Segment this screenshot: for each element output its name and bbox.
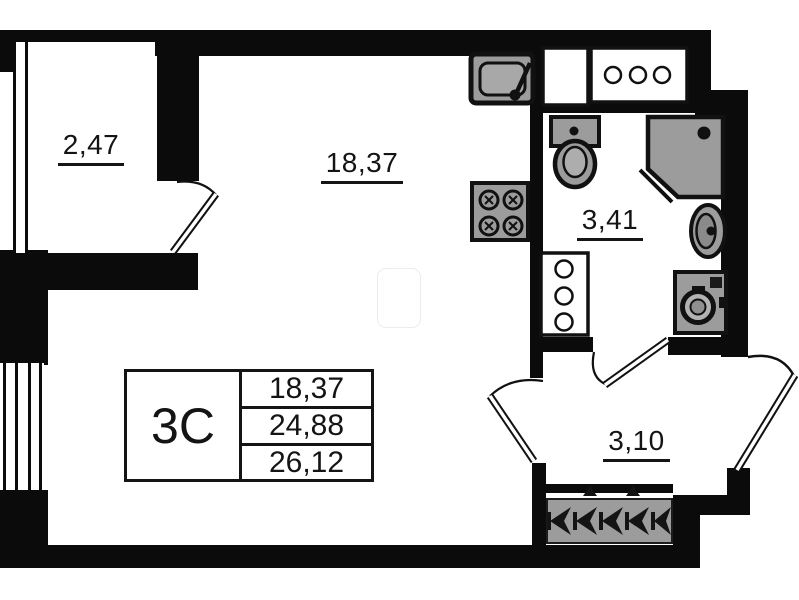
- wall-room-wc: [530, 48, 543, 378]
- window-pane-line: [15, 363, 18, 490]
- loggia-area-value: 2,47: [58, 129, 125, 166]
- living-area-label: 18,37: [305, 147, 419, 184]
- wall-wc-bottom-left: [532, 337, 593, 352]
- living-area-value: 18,37: [321, 147, 404, 184]
- entrance-door: [737, 356, 795, 470]
- toilet-icon: [551, 117, 599, 187]
- glazing-line: [25, 42, 28, 253]
- bathroom-area-value: 3,41: [577, 204, 644, 241]
- bathroom-door: [593, 340, 668, 385]
- balcony-glazing: [13, 42, 28, 253]
- window-pane-line: [39, 363, 42, 490]
- wall-balcony-bottom: [0, 253, 198, 290]
- cooktop-icon: [472, 183, 528, 240]
- living-area-cell: 18,37: [242, 372, 371, 406]
- living-room-door: [490, 380, 543, 461]
- window-left: [0, 363, 44, 490]
- window-pane-line: [3, 363, 6, 490]
- wall-balcony-divider: [157, 42, 199, 181]
- watermark: [377, 268, 421, 328]
- bathroom-cabinet-icon: [541, 253, 588, 335]
- apartment-type-cell: 3С: [127, 372, 242, 480]
- wall-hall-jamb: [532, 463, 546, 545]
- wall-top-right-mass: [530, 42, 711, 113]
- window-pane-line: [28, 363, 31, 490]
- apartment-info-table: 3С 18,37 24,88 26,12: [124, 369, 374, 482]
- corner-shower-icon: [640, 117, 723, 202]
- wall-balcony-top: [3, 30, 160, 42]
- total-area-cell: 26,12: [242, 443, 371, 480]
- wall-left-lower: [0, 490, 48, 568]
- wall-wc-bottom-right: [668, 337, 727, 355]
- kitchen-sink-icon: [471, 54, 533, 103]
- apartment-area-cell: 24,88: [242, 406, 371, 443]
- entrance-threshold-strip: [546, 484, 673, 493]
- glazing-line: [13, 42, 16, 253]
- balcony-door: [173, 182, 216, 252]
- loggia-area-label: 2,47: [41, 129, 141, 166]
- wall-right: [721, 92, 748, 357]
- entrance-mat: [546, 498, 673, 544]
- bathroom-area-label: 3,41: [558, 204, 662, 241]
- hallway-area-label: 3,10: [584, 425, 689, 462]
- floor-plan: 2,47 18,37 3,41 3,10 3С 18,37 24,88 26,1…: [0, 0, 799, 600]
- washing-machine-icon: [675, 272, 727, 333]
- hallway-area-value: 3,10: [603, 425, 670, 462]
- wall-entry-step-block: [673, 495, 700, 545]
- wall-bottom: [8, 545, 700, 568]
